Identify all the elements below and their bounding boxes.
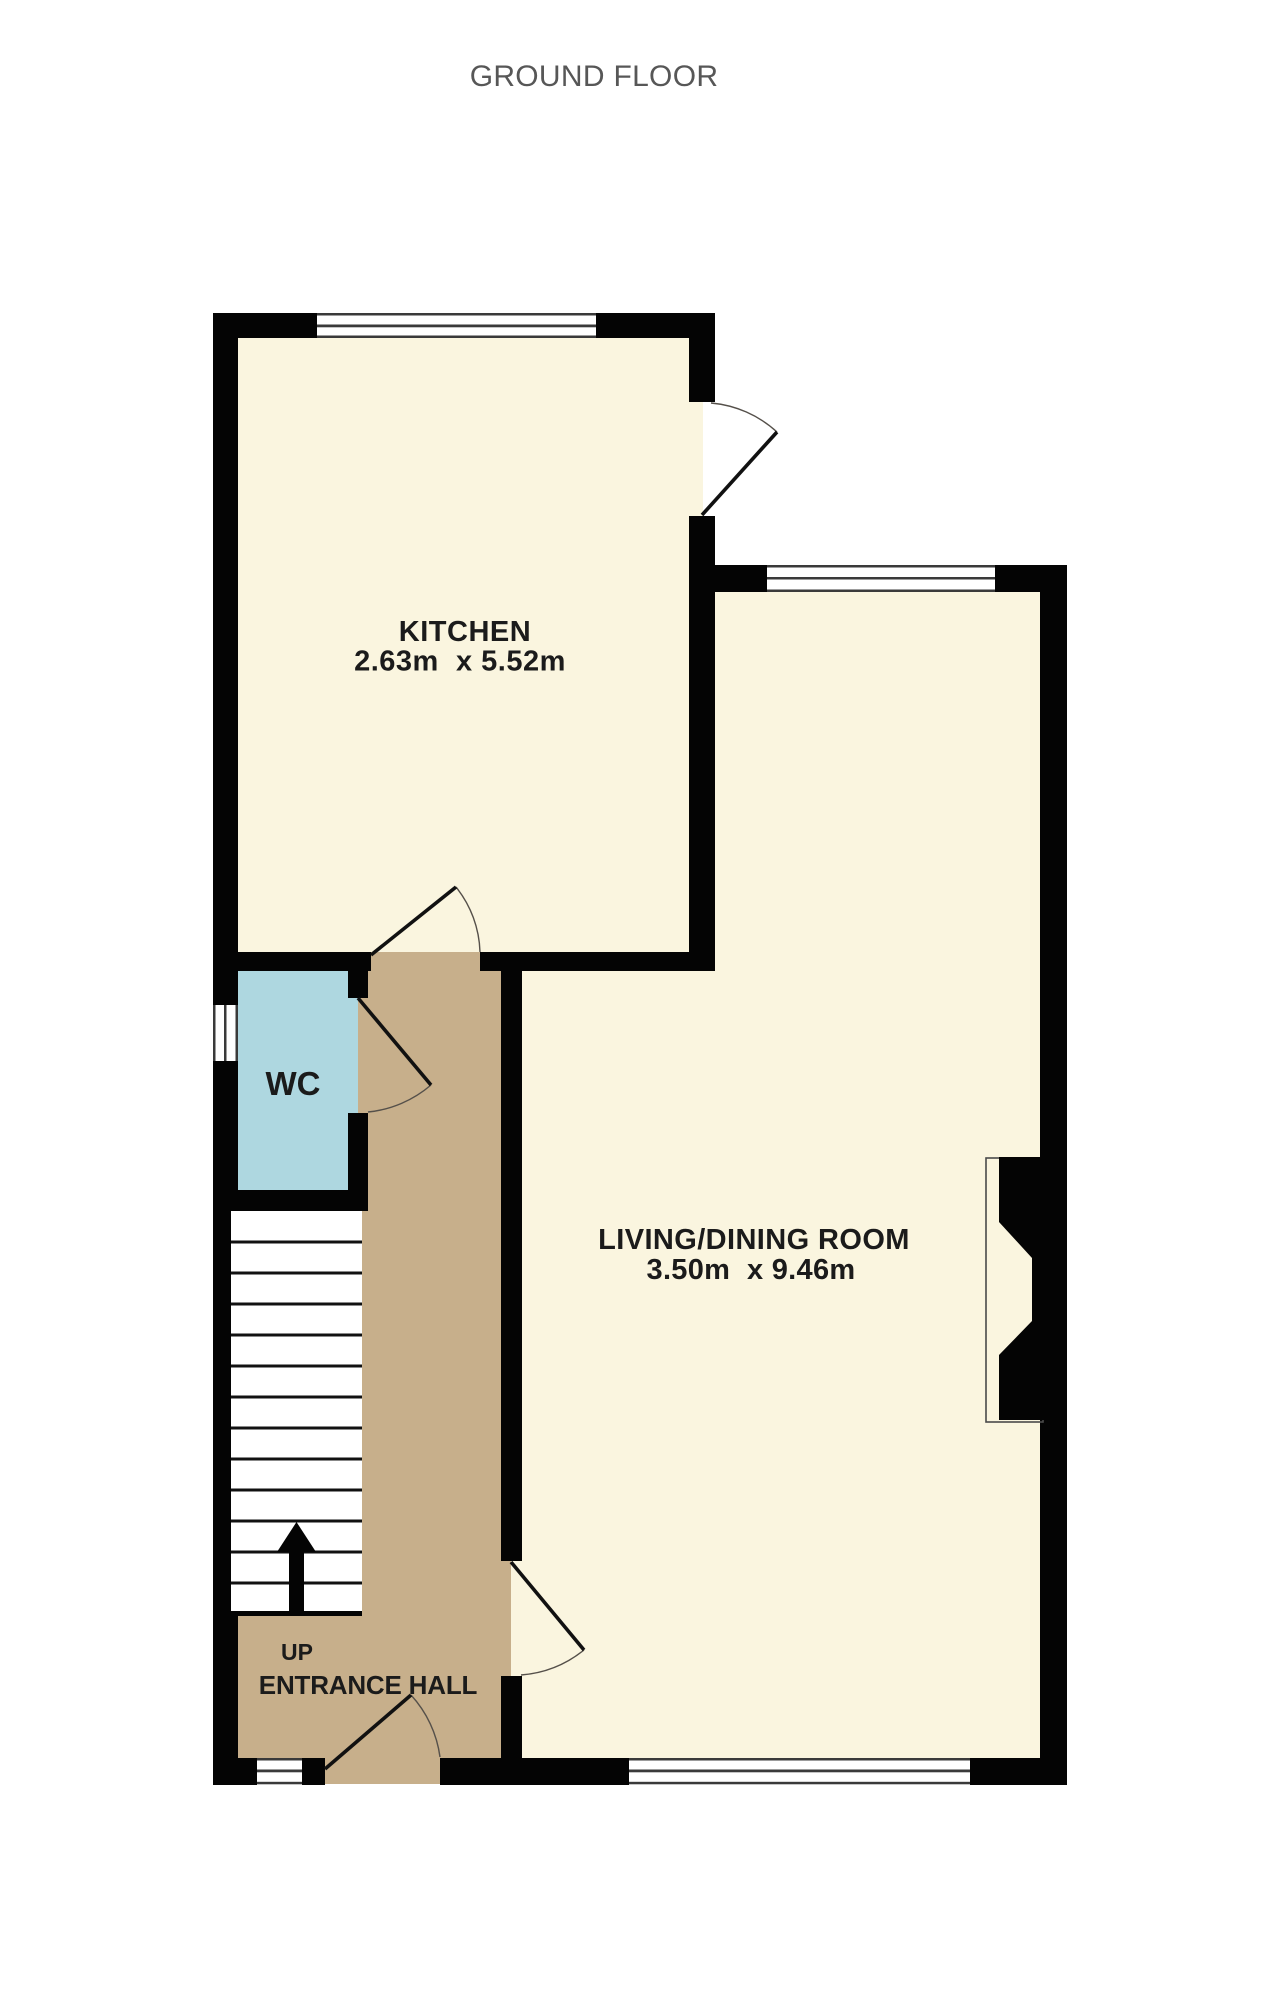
svg-text:3.50m x 9.46m: 3.50m x 9.46m bbox=[647, 1254, 856, 1286]
svg-text:GROUND FLOOR: GROUND FLOOR bbox=[470, 60, 719, 93]
svg-text:ENTRANCE HALL: ENTRANCE HALL bbox=[259, 1670, 478, 1700]
svg-text:LIVING/DINING ROOM: LIVING/DINING ROOM bbox=[598, 1224, 910, 1256]
svg-text:KITCHEN: KITCHEN bbox=[399, 616, 531, 648]
svg-text:UP: UP bbox=[281, 1639, 313, 1665]
svg-text:2.63m x 5.52m: 2.63m x 5.52m bbox=[354, 646, 566, 678]
svg-text:WC: WC bbox=[266, 1065, 321, 1102]
